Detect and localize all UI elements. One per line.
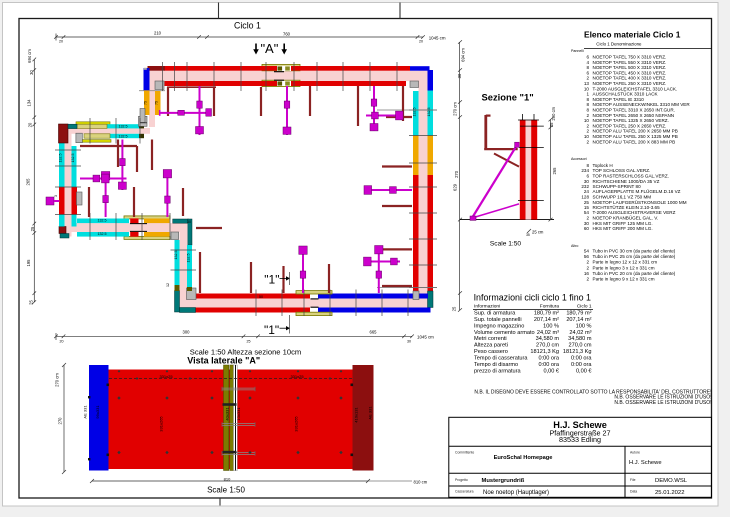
svg-text:331x265: 331x265 xyxy=(159,416,164,432)
svg-text:2: 2 xyxy=(586,139,589,144)
svg-text:18121,3 Kg: 18121,3 Kg xyxy=(563,349,592,355)
svg-text:8: 8 xyxy=(586,65,589,70)
svg-text:Accessori: Accessori xyxy=(571,157,587,161)
svg-text:8: 8 xyxy=(586,108,589,113)
svg-text:SCHWUPP 16,1 VZ 750 MM: SCHWUPP 16,1 VZ 750 MM xyxy=(593,195,652,200)
svg-text:T-2000 AUSGLEICHSTRAVERSE VERZ: T-2000 AUSGLEICHSTRAVERSE VERZ xyxy=(593,210,676,215)
svg-text:132.5: 132.5 xyxy=(71,154,75,163)
svg-text:Ciclo 1: Ciclo 1 xyxy=(234,21,261,31)
svg-text:3: 3 xyxy=(54,195,58,197)
svg-text:0:00 ora: 0:00 ora xyxy=(538,362,559,368)
svg-text:134: 134 xyxy=(27,99,32,107)
svg-text:2: 2 xyxy=(586,265,589,270)
svg-text:AE 331: AE 331 xyxy=(83,405,88,419)
svg-text:16: 16 xyxy=(584,271,590,276)
svg-text:0:00 ora: 0:00 ora xyxy=(571,362,592,368)
svg-text:132.5: 132.5 xyxy=(98,219,107,223)
svg-text:Noe noetop (Hauptlager): Noe noetop (Hauptlager) xyxy=(483,490,549,496)
svg-text:AUSSCHALSTÜCK 3310 LACK: AUSSCHALSTÜCK 3310 LACK xyxy=(593,91,659,97)
svg-text:665: 665 xyxy=(370,329,378,334)
svg-text:207,14 m²: 207,14 m² xyxy=(566,317,591,323)
svg-text:629: 629 xyxy=(453,183,458,191)
svg-text:6: 6 xyxy=(586,55,589,60)
svg-text:Tubo in PVC 30 cm (da parte de: Tubo in PVC 30 cm (da parte del cliente) xyxy=(593,249,676,254)
svg-text:300: 300 xyxy=(183,329,191,334)
svg-text:694 cm: 694 cm xyxy=(27,49,32,63)
svg-text:35: 35 xyxy=(526,233,530,237)
svg-text:Altezza pareti: Altezza pareti xyxy=(474,343,508,349)
svg-text:13: 13 xyxy=(584,81,590,86)
svg-text:30: 30 xyxy=(29,70,34,75)
svg-text:210: 210 xyxy=(154,31,162,36)
svg-text:"1": "1" xyxy=(264,273,279,287)
svg-text:99x331: 99x331 xyxy=(95,405,100,419)
svg-text:34,580 m: 34,580 m xyxy=(536,336,560,342)
svg-text:100 %: 100 % xyxy=(576,323,592,329)
svg-text:2: 2 xyxy=(586,113,589,118)
svg-text:0,00 €: 0,00 € xyxy=(576,368,592,374)
svg-text:Sup. di armatura: Sup. di armatura xyxy=(474,311,516,317)
svg-text:180,79 m²: 180,79 m² xyxy=(534,311,559,317)
svg-text:Data: Data xyxy=(630,490,637,494)
svg-text:N.B. OSSERVARE LE ISTRUZIONI D: N.B. OSSERVARE LE ISTRUZIONI D'USO! xyxy=(614,400,711,406)
svg-text:132.5: 132.5 xyxy=(174,251,178,260)
svg-text:NOETOP TAFEL 450 X 3310 VERZ.: NOETOP TAFEL 450 X 3310 VERZ. xyxy=(593,70,667,75)
svg-text:Ciclo 1: Ciclo 1 xyxy=(577,304,592,310)
svg-text:24: 24 xyxy=(584,189,590,194)
svg-text:270: 270 xyxy=(58,417,63,425)
svg-text:Ciclo 1 Denominazione: Ciclo 1 Denominazione xyxy=(596,42,642,47)
svg-text:0,00 €: 0,00 € xyxy=(543,368,559,374)
svg-text:Fornitura: Fornitura xyxy=(540,304,560,310)
svg-text:Metri correnti: Metri correnti xyxy=(474,336,507,342)
svg-text:2: 2 xyxy=(586,260,589,265)
svg-text:30: 30 xyxy=(457,73,462,78)
svg-text:Committente: Committente xyxy=(455,451,474,455)
svg-text:Sezione "1": Sezione "1" xyxy=(482,92,534,103)
svg-text:Mustergrundriß: Mustergrundriß xyxy=(482,478,525,484)
svg-text:331x25: 331x25 xyxy=(159,374,173,379)
svg-text:Tempo di disarmo: Tempo di disarmo xyxy=(474,362,518,368)
svg-text:10: 10 xyxy=(584,86,590,91)
svg-text:NOETOP ALU TAFEL 200 X 2650 MM: NOETOP ALU TAFEL 200 X 2650 MM PB xyxy=(593,129,678,134)
svg-text:132.5: 132.5 xyxy=(119,135,128,139)
svg-text:132.5: 132.5 xyxy=(427,108,431,117)
svg-text:10: 10 xyxy=(584,118,590,123)
svg-text:NOETOP TAFEL 3310 X 2650 INT.G: NOETOP TAFEL 3310 X 2650 INT.GUR. xyxy=(593,108,675,113)
svg-text:270 cm: 270 cm xyxy=(55,373,60,387)
svg-text:NOETOP TAFEL 250 X 3310 VERZ.: NOETOP TAFEL 250 X 3310 VERZ. xyxy=(593,81,667,86)
svg-text:265: 265 xyxy=(26,178,31,186)
svg-text:NOETOP TAFEL 400 X 3310 VERZ.: NOETOP TAFEL 400 X 3310 VERZ. xyxy=(593,76,667,81)
svg-text:NOETOP LAUFGERÜSTKONSOLE 1000: NOETOP LAUFGERÜSTKONSOLE 1000 MM xyxy=(593,199,687,205)
svg-text:8: 8 xyxy=(586,97,589,102)
svg-text:20: 20 xyxy=(419,40,423,44)
svg-text:Informazioni cicli ciclo 1 fi: Informazioni cicli ciclo 1 fino 1 xyxy=(474,293,591,303)
svg-text:20: 20 xyxy=(59,40,63,44)
svg-text:410x131: 410x131 xyxy=(354,407,359,423)
svg-text:331x265: 331x265 xyxy=(294,416,299,432)
svg-text:34,580 m: 34,580 m xyxy=(568,336,592,342)
svg-text:Altro: Altro xyxy=(571,244,578,248)
svg-text:128: 128 xyxy=(581,195,589,200)
svg-text:2: 2 xyxy=(586,76,589,81)
svg-text:56: 56 xyxy=(584,254,590,259)
svg-text:DEMO.WSL: DEMO.WSL xyxy=(655,478,688,484)
svg-text:AUFLAGERPLATTE M.FLÜGELM.D.16: AUFLAGERPLATTE M.FLÜGELM.D.16 VZ xyxy=(593,188,681,194)
svg-text:0:00 ora: 0:00 ora xyxy=(538,355,559,361)
svg-text:30: 30 xyxy=(407,340,411,344)
svg-text:6: 6 xyxy=(586,70,589,75)
svg-text:810 cm: 810 cm xyxy=(414,480,428,485)
svg-text:180,79 m²: 180,79 m² xyxy=(566,311,591,317)
svg-text:RICHTSTÜTZE KLEIN 2.10-3.65: RICHTSTÜTZE KLEIN 2.10-3.65 xyxy=(593,204,661,210)
svg-text:NOETOP AUSSENECKWINKEL 3310 MM: NOETOP AUSSENECKWINKEL 3310 MM VER xyxy=(593,102,691,107)
svg-text:25: 25 xyxy=(549,122,554,127)
svg-text:Volume cemento armato: Volume cemento armato xyxy=(474,330,535,336)
svg-text:1045 cm: 1045 cm xyxy=(429,35,446,40)
svg-text:18121,3 Kg: 18121,3 Kg xyxy=(530,349,559,355)
svg-text:30: 30 xyxy=(187,220,191,224)
svg-text:"1": "1" xyxy=(264,323,279,337)
svg-text:NOETOP TAFEL 250 X 2650 VERZ.: NOETOP TAFEL 250 X 2650 VERZ. xyxy=(593,123,667,128)
svg-text:4: 4 xyxy=(586,60,589,65)
svg-text:"A": "A" xyxy=(260,41,278,56)
svg-text:Peso cassero: Peso cassero xyxy=(474,349,508,355)
svg-text:prezzo di armatura: prezzo di armatura xyxy=(474,368,522,374)
svg-text:20: 20 xyxy=(60,340,64,344)
svg-text:270,0 cm: 270,0 cm xyxy=(568,343,591,349)
svg-text:Casseratura: Casseratura xyxy=(455,490,474,494)
svg-text:60: 60 xyxy=(584,226,590,231)
svg-text:Progetto: Progetto xyxy=(455,478,468,482)
svg-text:Impegno magazzino: Impegno magazzino xyxy=(474,323,524,329)
svg-text:Sup. totale pannelli: Sup. totale pannelli xyxy=(474,317,522,323)
svg-text:NOETOP TAFEL 2650 X 2650 NSPAN: NOETOP TAFEL 2650 X 2650 NSPANN xyxy=(593,113,675,118)
svg-text:HKS MIT GRIFF 200 MM LG.: HKS MIT GRIFF 200 MM LG. xyxy=(593,226,653,231)
svg-text:24,02 m³: 24,02 m³ xyxy=(537,330,559,336)
svg-text:265: 265 xyxy=(552,167,557,175)
svg-text:207,14 m²: 207,14 m² xyxy=(534,317,559,323)
svg-text:132.5: 132.5 xyxy=(59,154,63,163)
svg-text:Pannelli: Pannelli xyxy=(571,49,584,53)
svg-text:331x25: 331x25 xyxy=(290,374,304,379)
svg-text:6: 6 xyxy=(586,174,589,179)
svg-text:10x331: 10x331 xyxy=(236,407,241,421)
svg-text:Parte in legno 9 x 12 x 331 cm: Parte in legno 9 x 12 x 331 cm xyxy=(593,277,655,282)
svg-text:Elenco materiale Ciclo 1: Elenco materiale Ciclo 1 xyxy=(584,30,681,40)
svg-text:File: File xyxy=(630,478,636,482)
svg-text:2: 2 xyxy=(586,216,589,221)
svg-text:NOETOP TAFEL IE 3310: NOETOP TAFEL IE 3310 xyxy=(593,97,645,102)
svg-text:T-2000 AUSGLEICHSTAFEL 3310 LA: T-2000 AUSGLEICHSTAFEL 3310 LACK. xyxy=(593,86,678,91)
svg-text:EuroSchal Homepage: EuroSchal Homepage xyxy=(494,455,553,461)
svg-text:8: 8 xyxy=(586,102,589,107)
svg-text:NOETOP TAFEL 1325 X 2650 VERZ.: NOETOP TAFEL 1325 X 2650 VERZ. xyxy=(593,118,669,123)
svg-text:Informazioni: Informazioni xyxy=(474,304,500,310)
svg-text:25: 25 xyxy=(30,226,35,231)
svg-text:270,0 cm: 270,0 cm xyxy=(536,343,559,349)
svg-text:0:00 ora: 0:00 ora xyxy=(571,355,592,361)
svg-text:25.01.2022: 25.01.2022 xyxy=(655,490,684,496)
svg-text:40x331: 40x331 xyxy=(225,407,230,421)
svg-text:25: 25 xyxy=(247,340,251,344)
svg-text:Scale 1:50: Scale 1:50 xyxy=(490,241,521,248)
svg-text:54: 54 xyxy=(584,249,590,254)
svg-text:NOETOP ALU TAFEL 250 X 1325 MM: NOETOP ALU TAFEL 250 X 1325 MM PB xyxy=(593,134,678,139)
svg-text:10: 10 xyxy=(584,134,590,139)
svg-text:132.5: 132.5 xyxy=(119,125,128,129)
svg-text:270: 270 xyxy=(454,170,459,178)
svg-text:760: 760 xyxy=(283,31,291,36)
svg-text:NOETOP KRANBÜGEL GAL. V.: NOETOP KRANBÜGEL GAL. V. xyxy=(593,215,659,221)
svg-text:Parte in legno 12 x 12 x 331 c: Parte in legno 12 x 12 x 331 cm xyxy=(593,260,658,265)
svg-text:Parte in legno 3 x 12 x 331 cm: Parte in legno 3 x 12 x 331 cm xyxy=(593,265,655,270)
svg-text:20: 20 xyxy=(28,122,33,127)
svg-text:24,02 m³: 24,02 m³ xyxy=(569,330,591,336)
svg-text:100 %: 100 % xyxy=(543,323,559,329)
svg-text:132.5: 132.5 xyxy=(187,254,191,263)
svg-text:TOP RASTERSCHLOSS GAL.VERZ.: TOP RASTERSCHLOSS GAL.VERZ. xyxy=(593,174,669,179)
svg-text:25 cm: 25 cm xyxy=(532,230,544,235)
svg-text:1: 1 xyxy=(586,92,589,97)
svg-text:75: 75 xyxy=(155,101,159,105)
svg-text:50: 50 xyxy=(259,295,263,299)
svg-text:270 cm: 270 cm xyxy=(453,102,458,116)
svg-text:NOETOP TAFEL 750 X 3310 VERZ.: NOETOP TAFEL 750 X 3310 VERZ. xyxy=(593,55,667,60)
svg-text:195: 195 xyxy=(26,259,31,267)
svg-text:AE 331: AE 331 xyxy=(368,406,373,420)
svg-text:Tubo in PVC 25 cm (da parte de: Tubo in PVC 25 cm (da parte del cliente) xyxy=(593,254,676,259)
svg-text:234: 234 xyxy=(581,168,589,173)
svg-text:Scale 1:50: Scale 1:50 xyxy=(207,486,245,495)
svg-text:25: 25 xyxy=(29,300,34,305)
svg-text:75: 75 xyxy=(144,101,148,105)
svg-text:Autore: Autore xyxy=(630,451,640,455)
svg-text:TOP SCHLOSS GAL.VERZ.: TOP SCHLOSS GAL.VERZ. xyxy=(593,168,651,173)
svg-text:694 cm: 694 cm xyxy=(461,48,466,62)
svg-text:2: 2 xyxy=(586,129,589,134)
svg-text:Vista laterale "A": Vista laterale "A" xyxy=(187,356,260,366)
svg-text:NOETOP TAFEL 550 X 3310 VERZ.: NOETOP TAFEL 550 X 3310 VERZ. xyxy=(593,60,667,65)
svg-text:2: 2 xyxy=(586,277,589,282)
svg-text:25: 25 xyxy=(452,306,457,311)
svg-text:NOETOP TAFEL 500 X 3310 VERZ.: NOETOP TAFEL 500 X 3310 VERZ. xyxy=(593,65,667,70)
svg-text:132.5: 132.5 xyxy=(413,108,417,117)
svg-text:Tempo di casseratura: Tempo di casseratura xyxy=(474,355,528,361)
svg-text:H.J. Schewe: H.J. Schewe xyxy=(629,460,662,466)
svg-text:132.5: 132.5 xyxy=(98,232,107,236)
svg-text:2: 2 xyxy=(586,123,589,128)
svg-text:290 cm: 290 cm xyxy=(551,106,556,120)
svg-text:54: 54 xyxy=(584,210,590,215)
svg-text:12: 12 xyxy=(166,283,170,287)
svg-text:810: 810 xyxy=(224,476,231,481)
svg-text:83533 Edling: 83533 Edling xyxy=(559,435,601,444)
svg-text:NOETOP ALU TAFEL 200 X 883 MM: NOETOP ALU TAFEL 200 X 883 MM PB xyxy=(593,139,676,144)
svg-text:1045 cm: 1045 cm xyxy=(417,335,434,340)
svg-text:Tubo in PVC 20 cm (da parte de: Tubo in PVC 20 cm (da parte del cliente) xyxy=(593,271,676,276)
